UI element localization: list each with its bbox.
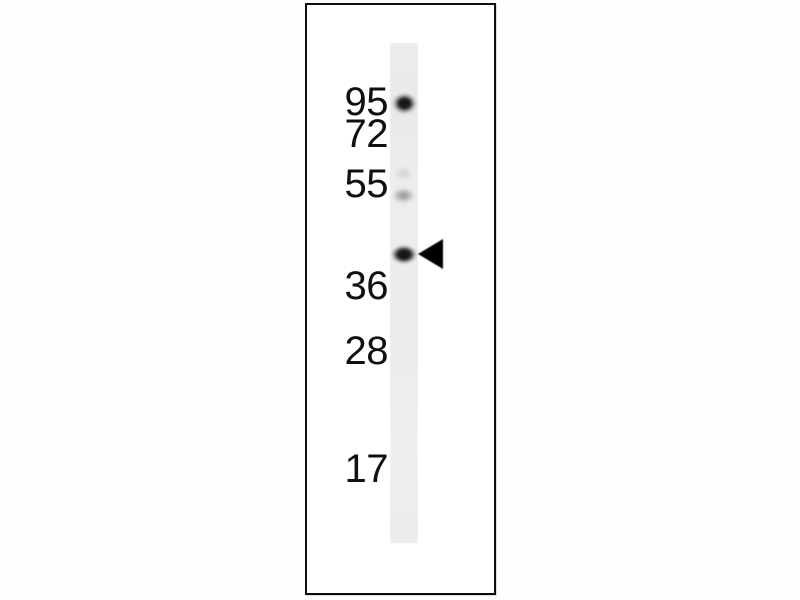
mw-marker-55: 55 — [308, 164, 388, 204]
mw-marker-17: 17 — [308, 449, 388, 489]
band-at-55-faint — [392, 188, 415, 203]
mw-marker-28: 28 — [308, 331, 388, 371]
gel-lane — [390, 43, 418, 543]
band-at-95 — [392, 93, 417, 114]
mw-marker-72: 72 — [308, 114, 388, 154]
band-above-55-faint — [394, 168, 413, 179]
mw-marker-36: 36 — [308, 266, 388, 306]
target-band-arrow-icon — [418, 239, 443, 269]
target-band — [391, 245, 417, 264]
